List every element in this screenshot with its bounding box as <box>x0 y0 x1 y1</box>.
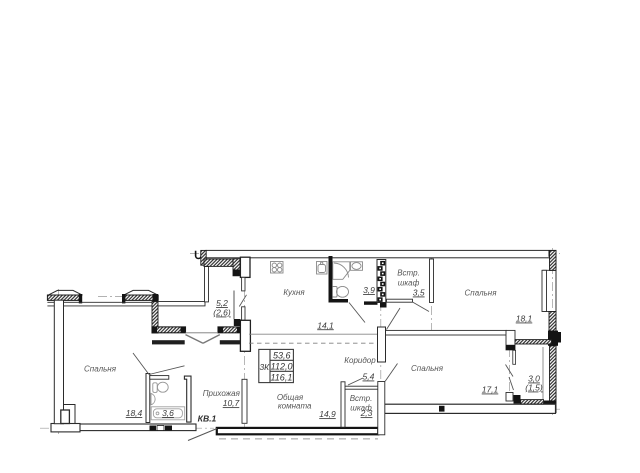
svg-text:Спальня: Спальня <box>84 365 117 374</box>
svg-text:Встр.: Встр. <box>397 269 420 278</box>
svg-text:5,4: 5,4 <box>362 372 374 382</box>
svg-text:5,2: 5,2 <box>216 298 228 308</box>
svg-text:116,1: 116,1 <box>270 373 292 383</box>
svg-text:53,6: 53,6 <box>273 351 291 361</box>
svg-text:Спальня: Спальня <box>411 364 444 373</box>
svg-text:Встр.: Встр. <box>350 394 373 403</box>
svg-text:3К: 3К <box>260 362 271 372</box>
svg-text:112,0: 112,0 <box>271 362 293 372</box>
svg-text:(1,5): (1,5) <box>525 383 543 393</box>
svg-text:3,5: 3,5 <box>413 288 425 298</box>
svg-text:Прихожая: Прихожая <box>203 389 241 398</box>
svg-text:шкаф: шкаф <box>398 279 420 288</box>
svg-text:Коридор: Коридор <box>344 356 376 365</box>
svg-text:Спальня: Спальня <box>465 289 498 298</box>
svg-text:10,7: 10,7 <box>223 398 240 408</box>
svg-text:14,1: 14,1 <box>317 320 334 330</box>
svg-text:(2,6): (2,6) <box>213 308 231 318</box>
svg-text:18,1: 18,1 <box>516 314 533 324</box>
svg-text:17,1: 17,1 <box>482 385 499 395</box>
svg-text:3,6: 3,6 <box>162 408 174 418</box>
svg-text:Кухня: Кухня <box>283 288 305 297</box>
svg-text:КВ.1: КВ.1 <box>198 414 217 424</box>
svg-text:18,4: 18,4 <box>126 408 143 418</box>
svg-text:3,9: 3,9 <box>363 285 375 295</box>
svg-text:14,9: 14,9 <box>319 409 336 419</box>
svg-text:комната: комната <box>278 402 312 411</box>
svg-text:2,3: 2,3 <box>360 408 373 418</box>
